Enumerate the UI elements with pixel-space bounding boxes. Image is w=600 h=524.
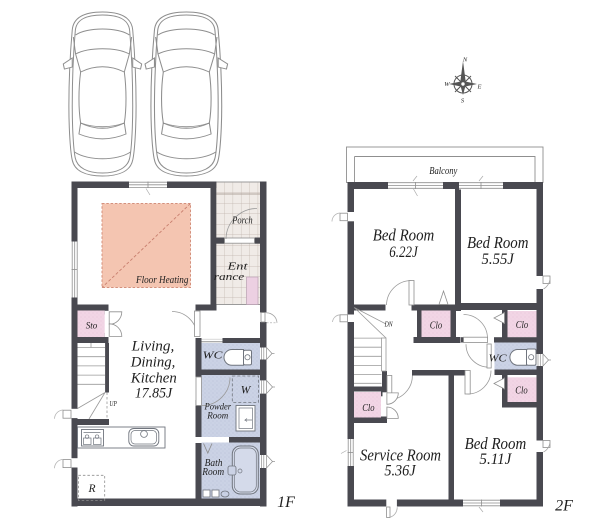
svg-text:Living,: Living, xyxy=(131,339,175,355)
svg-text:Balcony: Balcony xyxy=(429,166,457,177)
svg-text:rance: rance xyxy=(214,271,245,283)
svg-text:Room: Room xyxy=(201,467,224,478)
svg-text:Room: Room xyxy=(206,411,228,421)
svg-text:1F: 1F xyxy=(277,494,295,511)
svg-text:Bed Room: Bed Room xyxy=(467,233,529,252)
svg-text:Clo: Clo xyxy=(362,403,374,414)
svg-text:Clo: Clo xyxy=(516,320,528,331)
svg-text:2F: 2F xyxy=(555,498,573,515)
svg-text:N: N xyxy=(462,57,468,64)
svg-text:Clo: Clo xyxy=(430,321,442,332)
svg-text:R: R xyxy=(87,483,95,495)
svg-text:Bed Room: Bed Room xyxy=(373,225,435,244)
svg-text:WC: WC xyxy=(203,349,223,361)
svg-text:Dining,: Dining, xyxy=(130,355,176,371)
svg-text:Porch: Porch xyxy=(231,215,252,226)
svg-text:Sto: Sto xyxy=(86,322,98,332)
svg-text:6.22J: 6.22J xyxy=(389,244,418,261)
svg-text:W: W xyxy=(241,385,252,397)
svg-text:UP: UP xyxy=(109,399,117,408)
svg-text:W: W xyxy=(444,81,450,88)
svg-text:E: E xyxy=(477,84,482,91)
svg-text:5.36J: 5.36J xyxy=(384,463,416,480)
svg-text:Kitchen: Kitchen xyxy=(130,371,177,387)
svg-text:Floor Heating: Floor Heating xyxy=(135,275,188,286)
svg-text:S: S xyxy=(461,98,465,105)
svg-text:17.85J: 17.85J xyxy=(135,386,174,402)
svg-text:Clo: Clo xyxy=(515,386,527,397)
svg-text:5.55J: 5.55J xyxy=(482,251,515,268)
svg-text:5.11J: 5.11J xyxy=(479,451,512,468)
svg-text:WC: WC xyxy=(489,354,507,365)
svg-text:DN: DN xyxy=(384,320,394,329)
